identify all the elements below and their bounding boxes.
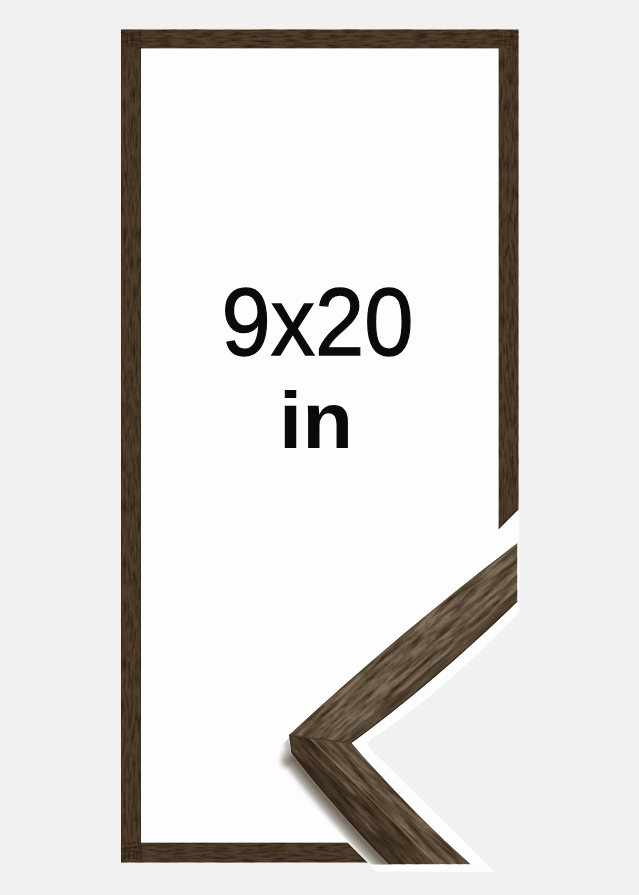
svg-text:9x20: 9x20: [222, 268, 414, 375]
svg-text:in: in: [279, 376, 353, 465]
